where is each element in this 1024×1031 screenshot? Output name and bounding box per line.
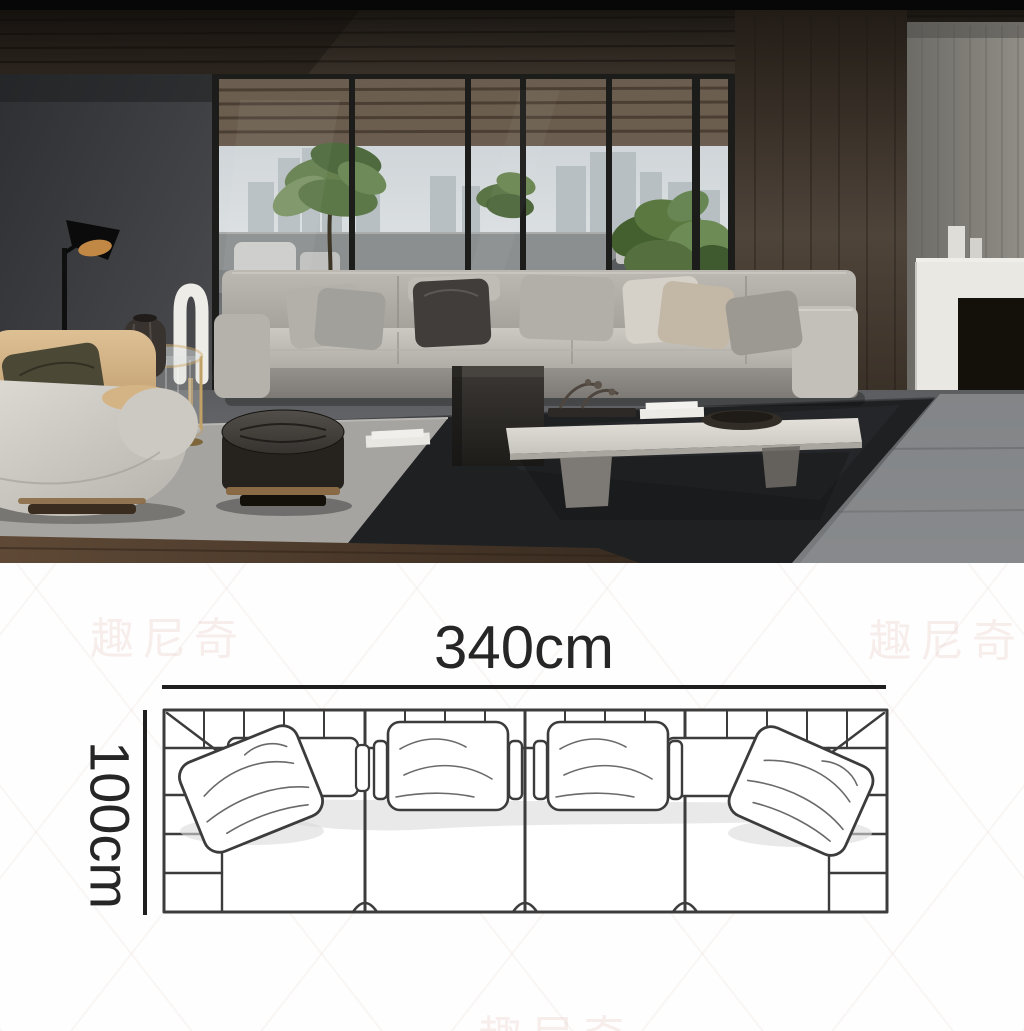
ottoman — [216, 410, 352, 516]
gold-ring — [226, 487, 340, 495]
dimension-section: 趣尼奇 趣尼奇 趣尼奇 趣尼奇 趣尼奇 340cm 100cm — [0, 563, 1024, 1031]
width-dimension-label: 340cm — [434, 614, 614, 681]
product-image: 趣尼奇 趣尼奇 趣尼奇 趣尼奇 趣尼奇 340cm 100cm — [0, 0, 1024, 1031]
magazine — [365, 428, 430, 447]
back-cushion-2 — [534, 722, 682, 810]
back-cushion-1 — [374, 722, 522, 810]
decor-papers — [640, 401, 705, 419]
sofa-right-arm — [792, 306, 858, 398]
sofa-top-view-diagram: 340cm 100cm — [0, 563, 1024, 1031]
living-room-photo — [0, 0, 1024, 563]
depth-dimension-label: 100cm — [79, 741, 142, 909]
living-room-scene — [0, 0, 1024, 563]
mantel-object — [970, 238, 982, 258]
sofa-outline — [164, 710, 887, 912]
mantel-object — [948, 226, 965, 258]
sofa-left-arm — [214, 314, 270, 398]
decor-bowl — [702, 410, 782, 430]
dark-pillow — [412, 278, 491, 348]
firebox — [958, 298, 1024, 390]
